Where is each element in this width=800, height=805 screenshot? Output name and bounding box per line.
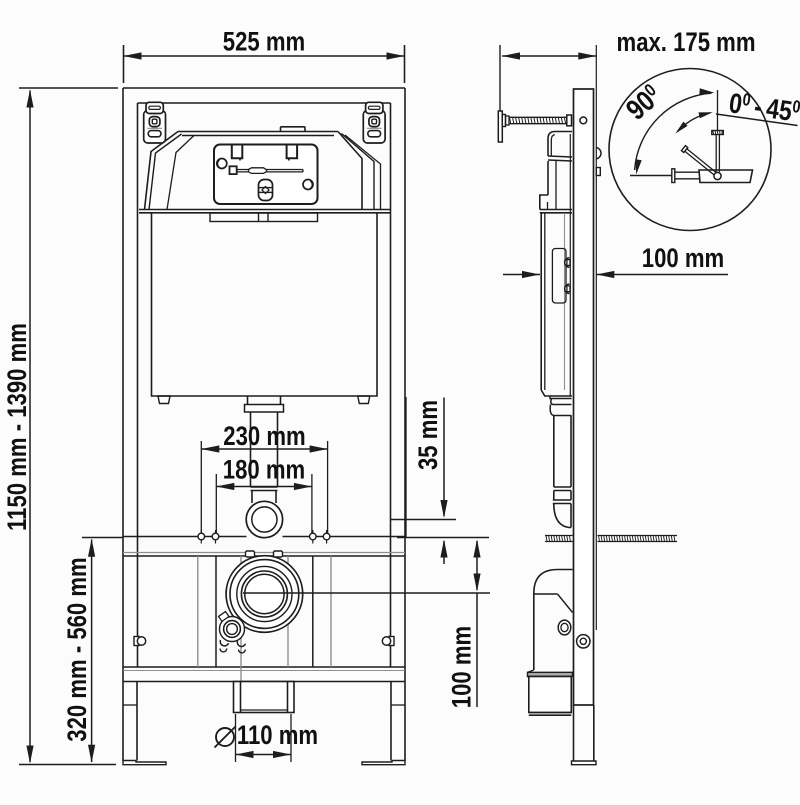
svg-text:max. 175 mm: max. 175 mm	[617, 28, 756, 58]
svg-text:1150 mm - 1390 mm: 1150 mm - 1390 mm	[3, 323, 33, 531]
svg-text:525 mm: 525 mm	[223, 28, 305, 58]
svg-text:320 mm - 560 mm: 320 mm - 560 mm	[63, 557, 93, 741]
svg-text:100 mm: 100 mm	[448, 626, 478, 708]
svg-text:100 mm: 100 mm	[642, 244, 724, 274]
svg-text:110 mm: 110 mm	[237, 721, 318, 751]
svg-text:180 mm: 180 mm	[223, 456, 305, 486]
svg-text:230 mm: 230 mm	[223, 422, 305, 452]
svg-text:35 mm: 35 mm	[414, 400, 444, 470]
